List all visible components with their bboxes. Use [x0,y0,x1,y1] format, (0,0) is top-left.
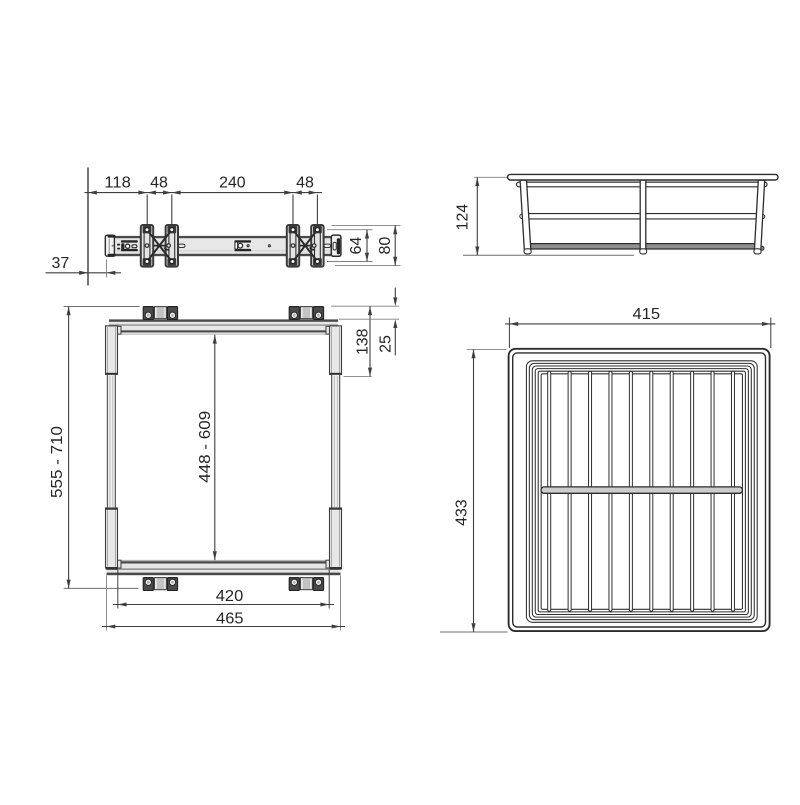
svg-text:240: 240 [219,175,246,192]
svg-text:448 - 609: 448 - 609 [197,411,214,483]
svg-text:124: 124 [454,204,471,231]
svg-text:138: 138 [355,328,372,355]
svg-text:80: 80 [377,237,394,255]
svg-text:433: 433 [454,499,471,526]
svg-text:64: 64 [348,237,365,255]
svg-text:48: 48 [296,175,314,192]
svg-text:118: 118 [104,175,131,192]
svg-text:48: 48 [150,175,168,192]
svg-text:25: 25 [377,335,394,353]
svg-text:465: 465 [216,611,244,628]
svg-text:420: 420 [216,588,244,605]
svg-text:555 - 710: 555 - 710 [49,426,66,498]
svg-text:415: 415 [633,306,661,323]
svg-text:37: 37 [52,255,70,272]
